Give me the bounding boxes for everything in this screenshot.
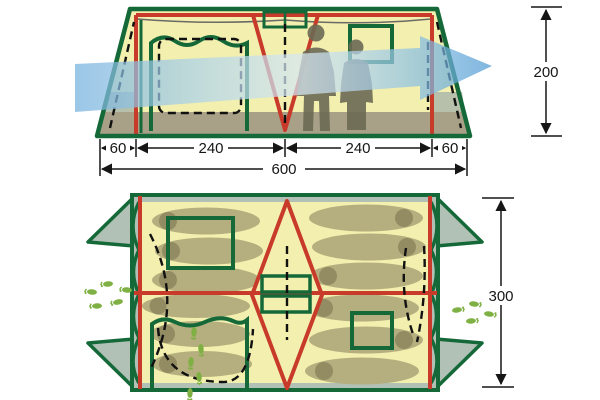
dim-left-60: 60	[110, 140, 127, 157]
dim-right-60: 60	[442, 140, 459, 157]
dim-right-240: 240	[345, 140, 370, 157]
dim-total-600: 600	[271, 161, 296, 178]
tent-floor-plan	[84, 195, 497, 400]
tent-side-elevation	[75, 9, 492, 136]
tent-diagram: 60 240 240 60 600 200	[0, 0, 600, 400]
tent-diagram-canvas: 60 240 240 60 600 200	[0, 0, 600, 400]
dim-height-200: 200	[533, 64, 558, 81]
dim-left-240: 240	[198, 140, 223, 157]
floor-plan-dimensions: 300	[482, 198, 520, 387]
dim-depth-300: 300	[488, 288, 513, 305]
